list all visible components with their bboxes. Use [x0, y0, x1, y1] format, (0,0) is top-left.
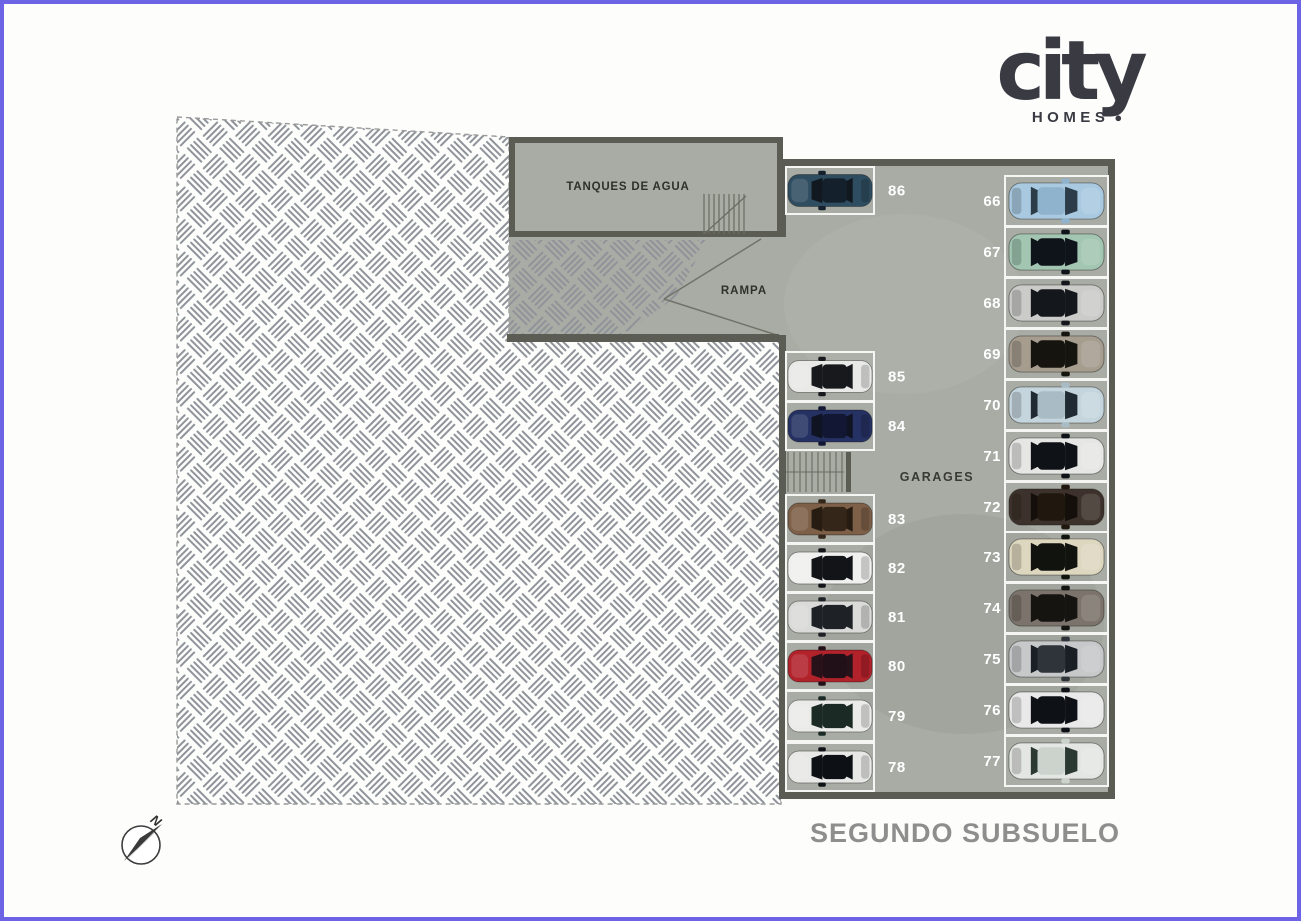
spot-number: 76 [983, 702, 1001, 719]
car-top-view [1009, 535, 1104, 580]
logo-homes-text: HOMES [1032, 109, 1110, 126]
brand-logo: city HOMES● [969, 34, 1169, 126]
spot-number: 68 [983, 295, 1001, 312]
spot-number: 73 [983, 549, 1001, 566]
spot-number: 67 [983, 244, 1001, 261]
spot-number: 81 [888, 609, 906, 626]
car-top-view [1009, 485, 1104, 530]
garages-label: GARAGES [870, 470, 1004, 484]
car-top-view [788, 696, 872, 735]
ramp-bottom-wall [507, 334, 785, 342]
car-top-view [1009, 434, 1104, 479]
car-top-view [1009, 281, 1104, 326]
spot-number: 85 [888, 369, 906, 386]
car-top-view [788, 357, 872, 396]
car-top-view [1009, 383, 1104, 428]
spot-number: 70 [983, 397, 1001, 414]
spot-number: 69 [983, 346, 1001, 363]
floor-title: SEGUNDO SUBSUELO [784, 818, 1120, 849]
spot-number: 79 [888, 708, 906, 725]
spot-number: 75 [983, 651, 1001, 668]
car-top-view [1009, 739, 1104, 784]
water-tank-room-label: TANQUES DE AGUA [512, 140, 744, 234]
car-top-view [788, 597, 872, 636]
spot-number: 84 [888, 418, 906, 435]
compass-north-label: N [148, 812, 165, 830]
floorplan-page: 8685848382818079786667686970717273747576… [0, 0, 1301, 921]
car-top-view [1009, 637, 1104, 682]
car-top-view [1009, 179, 1104, 224]
spot-number: 77 [983, 753, 1001, 770]
stair-wall-stub [846, 452, 851, 492]
spot-number: 74 [983, 600, 1001, 617]
ramp-label: RAMPA [704, 285, 784, 297]
logo-dot-icon: ● [1114, 110, 1122, 125]
car-top-view [788, 747, 872, 786]
compass: N [122, 812, 165, 864]
car-top-view [788, 499, 872, 538]
spot-number: 72 [983, 499, 1001, 516]
spot-number: 66 [983, 193, 1001, 210]
spot-number: 71 [983, 448, 1001, 465]
car-top-view [1009, 688, 1104, 733]
car-top-view [1009, 230, 1104, 275]
car-top-view [788, 646, 872, 685]
logo-wordmark: city [969, 34, 1169, 109]
spot-number: 86 [888, 183, 906, 200]
car-top-view [788, 171, 872, 210]
spot-number: 83 [888, 511, 906, 528]
spot-number: 80 [888, 658, 906, 675]
car-top-view [1009, 586, 1104, 631]
car-top-view [788, 406, 872, 445]
spot-number: 78 [888, 759, 906, 776]
spot-number: 82 [888, 560, 906, 577]
car-top-view [1009, 332, 1104, 377]
car-top-view [788, 548, 872, 587]
